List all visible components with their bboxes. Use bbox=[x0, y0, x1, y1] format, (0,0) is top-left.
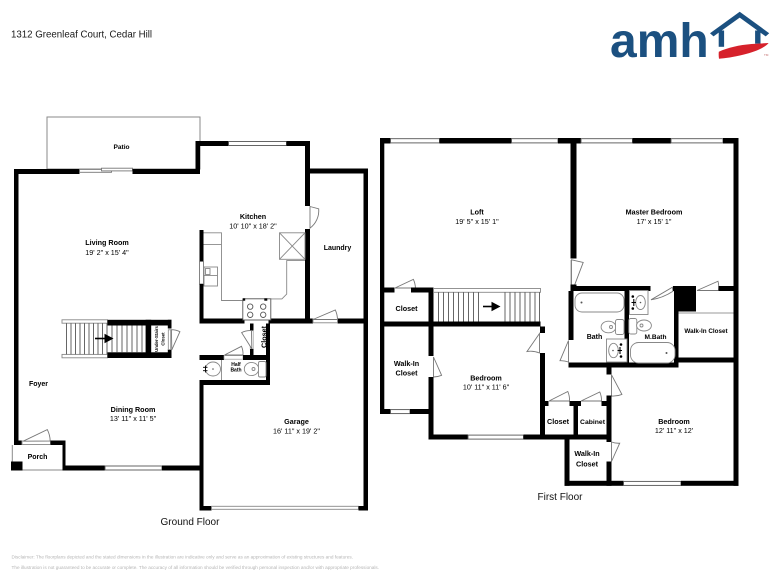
svg-text:13' 11" x 11' 5": 13' 11" x 11' 5" bbox=[110, 414, 157, 423]
svg-text:Closet: Closet bbox=[396, 368, 419, 377]
svg-text:Living Room: Living Room bbox=[85, 238, 129, 247]
svg-text:Walk-In Closet: Walk-In Closet bbox=[684, 328, 728, 335]
svg-text:Closet: Closet bbox=[547, 417, 570, 426]
svg-text:12' 11" x 12': 12' 11" x 12' bbox=[655, 426, 694, 435]
svg-text:Bedroom: Bedroom bbox=[658, 417, 690, 426]
svg-text:Bath: Bath bbox=[587, 334, 603, 341]
svg-text:Cabinet: Cabinet bbox=[580, 419, 606, 426]
svg-text:Walk-In: Walk-In bbox=[574, 449, 599, 458]
svg-text:amh: amh bbox=[610, 15, 709, 68]
svg-text:Ground Floor: Ground Floor bbox=[161, 517, 221, 528]
svg-text:Laundry: Laundry bbox=[324, 245, 352, 252]
svg-text:Walk-In: Walk-In bbox=[394, 359, 419, 368]
svg-text:Disclaimer: The floorplans dep: Disclaimer: The floorplans depicted and … bbox=[12, 554, 354, 559]
svg-text:The illustration is not guaran: The illustration is not guaranteed to be… bbox=[12, 565, 380, 570]
svg-text:1312 Greenleaf Court, Cedar Hi: 1312 Greenleaf Court, Cedar Hill bbox=[11, 30, 152, 41]
svg-text:Bath: Bath bbox=[230, 368, 241, 374]
svg-text:TM: TM bbox=[764, 53, 769, 57]
svg-text:Foyer: Foyer bbox=[29, 381, 48, 388]
svg-text:Garage: Garage bbox=[284, 417, 309, 426]
svg-text:First Floor: First Floor bbox=[538, 492, 584, 503]
svg-text:Porch: Porch bbox=[28, 454, 48, 461]
svg-text:M.Bath: M.Bath bbox=[645, 334, 667, 341]
svg-text:Patio: Patio bbox=[113, 144, 129, 151]
svg-text:19' 2" x 15' 4": 19' 2" x 15' 4" bbox=[85, 248, 129, 257]
svg-text:Closet: Closet bbox=[259, 325, 268, 348]
svg-text:19' 5" x 15' 1": 19' 5" x 15' 1" bbox=[455, 217, 499, 226]
svg-text:Closet: Closet bbox=[396, 304, 419, 313]
svg-text:10' 11" x 11' 6": 10' 11" x 11' 6" bbox=[463, 382, 510, 391]
svg-text:10' 10" x 18' 2": 10' 10" x 18' 2" bbox=[229, 222, 277, 231]
svg-text:Master Bedroom: Master Bedroom bbox=[626, 208, 683, 217]
svg-text:Closet: Closet bbox=[576, 459, 599, 468]
svg-text:Dining Room: Dining Room bbox=[111, 405, 156, 414]
svg-text:Under-Stairs: Under-Stairs bbox=[154, 326, 159, 352]
svg-text:Loft: Loft bbox=[470, 208, 484, 217]
svg-text:17' x 15' 1": 17' x 15' 1" bbox=[637, 217, 672, 226]
svg-text:16' 11" x 19' 2": 16' 11" x 19' 2" bbox=[273, 426, 320, 435]
svg-text:Closet: Closet bbox=[161, 332, 166, 346]
svg-text:Bedroom: Bedroom bbox=[470, 374, 502, 383]
svg-text:Kitchen: Kitchen bbox=[240, 212, 266, 221]
